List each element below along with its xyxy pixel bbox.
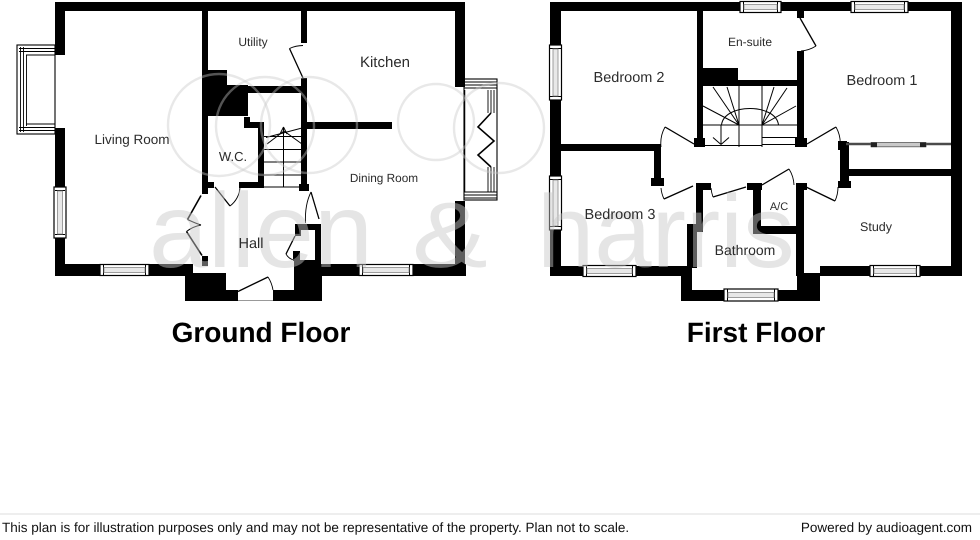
svg-text:Powered by audioagent.com: Powered by audioagent.com — [801, 520, 972, 535]
svg-text:Bedroom 1: Bedroom 1 — [847, 73, 918, 89]
svg-text:Dining Room: Dining Room — [350, 171, 418, 185]
svg-text:&: & — [412, 183, 488, 287]
svg-text:Kitchen: Kitchen — [360, 54, 410, 71]
svg-text:W.C.: W.C. — [219, 149, 247, 164]
svg-text:Bedroom 2: Bedroom 2 — [594, 70, 665, 86]
svg-text:Bedroom 3: Bedroom 3 — [585, 207, 656, 223]
svg-text:First Floor: First Floor — [687, 317, 826, 348]
svg-text:harris: harris — [537, 174, 795, 289]
svg-text:En-suite: En-suite — [728, 35, 772, 49]
svg-text:This plan is for illustration: This plan is for illustration purposes o… — [2, 520, 629, 535]
svg-text:Hall: Hall — [239, 236, 264, 252]
svg-text:Bathroom: Bathroom — [715, 242, 776, 258]
svg-text:Ground Floor: Ground Floor — [172, 317, 351, 348]
svg-text:allen: allen — [149, 172, 373, 290]
svg-text:Living Room: Living Room — [94, 132, 169, 147]
svg-text:Study: Study — [860, 220, 893, 234]
svg-text:A/C: A/C — [770, 201, 788, 213]
svg-text:Utility: Utility — [238, 35, 267, 49]
